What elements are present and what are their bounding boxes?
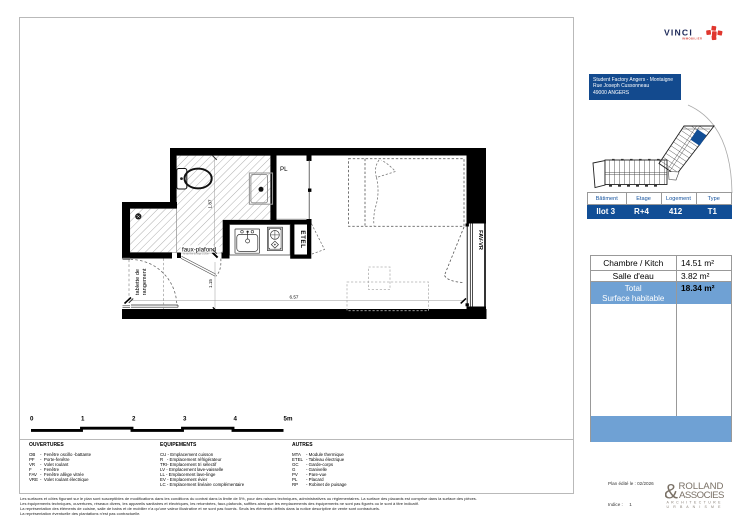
svg-text:2: 2 — [132, 416, 136, 423]
svg-text:rangement: rangement — [142, 268, 148, 295]
svg-text:3: 3 — [183, 416, 187, 423]
svg-text:U R B A N I S M E: U R B A N I S M E — [667, 505, 722, 509]
svg-text:FAV-VR: FAV-VR — [477, 230, 483, 250]
svg-text:4: 4 — [234, 416, 238, 423]
svg-text:ETEL: ETEL — [299, 230, 306, 248]
svg-text:5m: 5m — [284, 416, 293, 423]
svg-text:A R C H I T E C T U R E: A R C H I T E C T U R E — [667, 500, 722, 504]
svg-text:PL: PL — [280, 166, 288, 173]
svg-text:VINCI: VINCI — [664, 28, 693, 38]
svg-text:IMMOBILIER: IMMOBILIER — [682, 37, 702, 41]
svg-text:1.87: 1.87 — [208, 199, 213, 208]
svg-text:tablette de: tablette de — [135, 269, 141, 295]
svg-text:0: 0 — [30, 416, 34, 423]
svg-text:1.15: 1.15 — [208, 279, 213, 288]
svg-text:1: 1 — [81, 416, 85, 423]
svg-text:6.57: 6.57 — [290, 294, 299, 299]
svg-text:ht s/pl fini du logt: 2.20m: ht s/pl fini du logt: 2.20m — [183, 253, 209, 256]
